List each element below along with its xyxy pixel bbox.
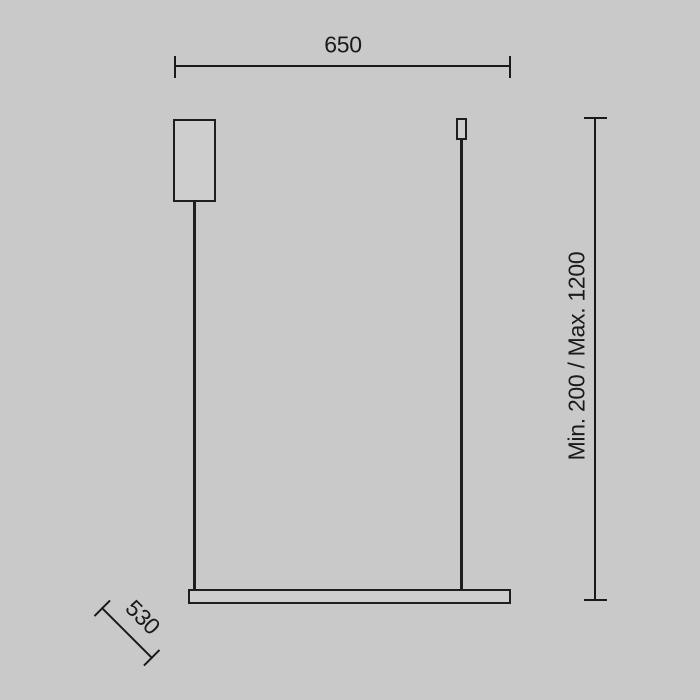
ceiling-canopy [173,119,216,202]
height-dimension-bottom-tick [584,599,607,601]
height-dimension-line [594,118,596,600]
linear-light-bar [188,589,511,604]
right-suspension-cable [460,139,463,591]
height-dimension-top-tick [584,117,607,119]
width-dimension-end-tick [509,56,511,78]
left-suspension-cable [193,200,196,591]
height-dimension-label: Min. 200 / Max. 1200 [564,252,591,461]
cable-grip [456,118,467,140]
width-dimension-start-tick [174,56,176,78]
width-dimension-label: 650 [324,32,361,59]
dimension-drawing: 650 Min. 200 / Max. 1200 530 [0,0,700,700]
width-dimension-line [175,65,510,67]
